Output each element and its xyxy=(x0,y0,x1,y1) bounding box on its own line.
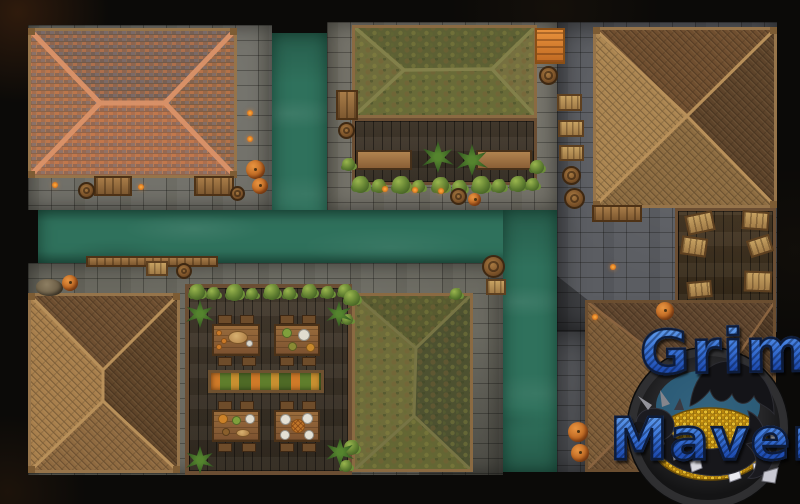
ivy xyxy=(302,284,317,299)
ivy xyxy=(189,284,205,300)
stool xyxy=(218,357,232,366)
ivy xyxy=(352,176,369,193)
pie xyxy=(291,419,305,433)
lantern-dot xyxy=(52,182,58,188)
lantern-dot xyxy=(382,186,388,192)
plate xyxy=(298,329,310,341)
lantern-dot xyxy=(592,314,598,320)
south-moss-roof xyxy=(352,293,473,472)
crate xyxy=(146,261,168,276)
battle-map: Grim Maven xyxy=(0,0,800,504)
stool xyxy=(302,401,316,410)
ivy xyxy=(283,287,296,300)
stool xyxy=(280,357,294,366)
stool xyxy=(280,315,294,324)
stool xyxy=(242,357,256,366)
terracotta-roof xyxy=(28,28,237,178)
ivy xyxy=(472,176,490,194)
lantern-dot xyxy=(438,188,444,194)
plate xyxy=(280,430,290,440)
moss-roof xyxy=(352,25,537,118)
ivy xyxy=(510,176,526,192)
pumpkin xyxy=(246,160,265,179)
ivy xyxy=(321,286,334,299)
sw-shingle-roof xyxy=(28,293,180,473)
porch-bench-left xyxy=(356,150,412,170)
sack xyxy=(36,279,63,296)
ivy xyxy=(340,460,352,472)
canal-east xyxy=(503,210,557,472)
pumpkin xyxy=(468,193,481,206)
pyramid-shingle-roof xyxy=(593,27,777,208)
crate xyxy=(680,235,708,257)
barrel xyxy=(230,186,245,201)
market-stall xyxy=(194,176,234,196)
crate xyxy=(741,210,769,231)
bowl-brown xyxy=(222,428,230,436)
plate xyxy=(304,430,314,440)
lantern-dot xyxy=(610,264,616,270)
bowl-orange xyxy=(306,343,315,352)
lantern-dot xyxy=(247,136,253,142)
crate-stand xyxy=(336,90,358,120)
barrel xyxy=(482,255,505,278)
market-stall xyxy=(94,176,132,196)
market-stall xyxy=(592,205,642,222)
roast-bird xyxy=(228,331,248,344)
moss-roof-house-south xyxy=(352,293,473,472)
food-orange xyxy=(216,344,222,350)
orange-crate xyxy=(535,28,565,64)
stool xyxy=(218,401,232,410)
dining-table xyxy=(274,324,320,356)
stool xyxy=(218,315,232,324)
ivy xyxy=(246,288,258,300)
ivy xyxy=(392,176,410,194)
stool xyxy=(302,315,316,324)
bowl-orange xyxy=(218,414,228,424)
lantern-dot xyxy=(247,110,253,116)
ivy xyxy=(526,178,539,191)
ivy xyxy=(342,158,355,171)
pumpkin xyxy=(568,422,588,442)
crate xyxy=(686,280,712,299)
ivy xyxy=(264,284,280,300)
food-orange xyxy=(216,330,222,336)
bowl-olive xyxy=(288,342,297,351)
logo-text-line1: Grim xyxy=(639,321,800,384)
lantern-dot xyxy=(412,187,418,193)
barrel xyxy=(176,263,192,279)
plate xyxy=(280,414,291,425)
plate xyxy=(245,414,255,424)
stool xyxy=(280,443,294,452)
lantern-dot xyxy=(138,184,144,190)
crate xyxy=(486,279,506,295)
bread xyxy=(236,429,250,437)
grim-maven-watermark: Grim Maven xyxy=(598,326,800,504)
stool xyxy=(242,443,256,452)
stool xyxy=(240,401,254,410)
barrel xyxy=(564,188,585,209)
barrel xyxy=(78,182,95,199)
stool xyxy=(240,315,254,324)
stool xyxy=(302,357,316,366)
shingle-house-south-west xyxy=(28,293,180,473)
pumpkin xyxy=(62,275,78,291)
shingle-house-north-east xyxy=(593,27,777,208)
crate xyxy=(744,271,773,293)
ivy xyxy=(492,179,506,193)
pumpkin xyxy=(571,444,589,462)
ivy xyxy=(226,284,243,301)
barrel xyxy=(539,66,558,85)
ivy xyxy=(450,288,462,300)
ivy xyxy=(207,287,220,300)
crate xyxy=(557,94,582,111)
logo-text-line2: Maven xyxy=(610,410,800,468)
barrel xyxy=(450,188,467,205)
barrel xyxy=(338,122,355,139)
terracotta-roof-house xyxy=(28,28,237,178)
food-orange xyxy=(221,338,227,344)
crate xyxy=(558,120,584,137)
bowl-green xyxy=(282,328,292,338)
pumpkin xyxy=(252,178,268,194)
mushroom xyxy=(246,340,253,347)
stool xyxy=(218,443,232,452)
ivy xyxy=(530,160,544,174)
stool xyxy=(280,401,294,410)
bowl-green xyxy=(232,416,241,425)
crate xyxy=(559,145,584,161)
barrel xyxy=(562,166,581,185)
ivy xyxy=(344,290,360,306)
stool xyxy=(302,443,316,452)
produce-planter xyxy=(208,370,324,393)
